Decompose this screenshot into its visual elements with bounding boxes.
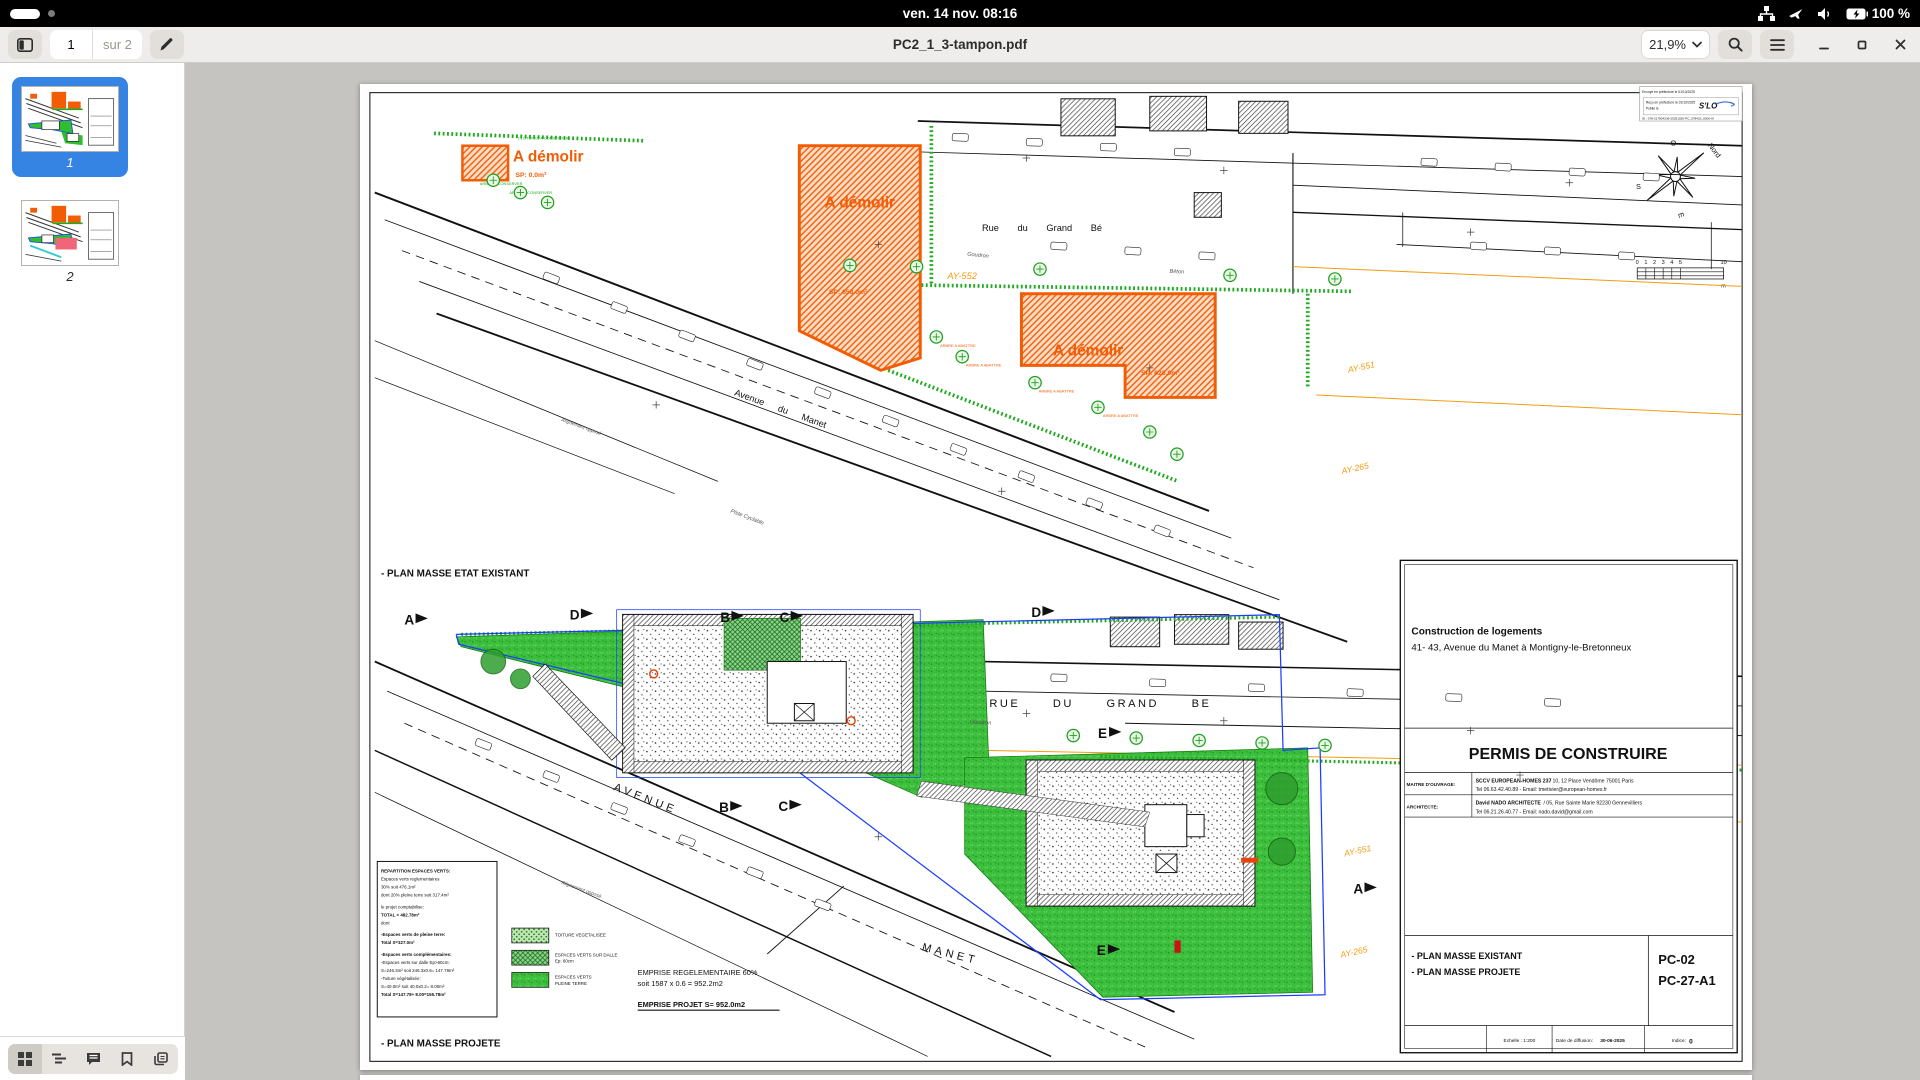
svg-text:D: D <box>1031 605 1041 620</box>
sheet-number-1: PC-02 <box>1658 952 1695 967</box>
svg-text:MAITRE D'OUVRAGE:: MAITRE D'OUVRAGE: <box>1406 782 1455 787</box>
maximize-button[interactable] <box>1850 33 1874 57</box>
svg-text:S: S <box>1636 182 1641 191</box>
svg-text:Date de diffusion:: Date de diffusion: <box>1556 1038 1593 1044</box>
dimension-label <box>610 301 628 314</box>
svg-text:David NADO ARCHITECTE: David NADO ARCHITECTE <box>1476 801 1542 807</box>
svg-text:30% soit 476.1m²: 30% soit 476.1m² <box>381 885 416 890</box>
workspace-active-pill[interactable] <box>10 9 40 19</box>
sheet-number-2: PC-27-A1 <box>1658 973 1716 988</box>
dimension-label <box>1618 252 1634 260</box>
demolir-label-3: A démolir <box>1053 342 1123 359</box>
svg-text:Reçu en préfecture le 01/10/20: Reçu en préfecture le 01/10/2025 <box>1646 101 1696 105</box>
svg-text:TOITURE VEGETALISEE: TOITURE VEGETALISEE <box>555 933 606 938</box>
annotation-bubble-icon <box>86 1052 101 1066</box>
hamburger-menu-icon <box>1770 39 1785 51</box>
svg-text:-Espaces verts complémentaires: -Espaces verts complémentaires: <box>381 952 452 957</box>
street-manet: MANET <box>921 942 980 968</box>
title-block: Construction de logements 41- 43, Avenue… <box>1400 560 1737 1052</box>
parcel-ay-552: AY-552 <box>946 271 977 281</box>
pdf-page-1: Envoyé en préfecture le 01/10/2025 Reçu … <box>360 84 1752 1070</box>
svg-text:ARBRE A ABATTRE: ARBRE A ABATTRE <box>1039 389 1075 394</box>
svg-text:le projet comptabilise:: le projet comptabilise: <box>381 904 424 909</box>
sidebar-mode-thumbnails-button[interactable] <box>8 1044 42 1074</box>
svg-text:ARCHITECTE:: ARCHITECTE: <box>1406 804 1438 809</box>
zoom-level-value: 21,9% <box>1649 37 1686 52</box>
maximize-icon <box>1856 39 1868 51</box>
sidebar-mode-attachments-button[interactable] <box>144 1044 178 1074</box>
svg-text:Total S=147.78+ 8.00=155.78m²: Total S=147.78+ 8.00=155.78m² <box>381 992 446 997</box>
svg-text:C: C <box>778 799 788 814</box>
svg-text:Alignement opposé: Alignement opposé <box>560 417 603 437</box>
svg-text:S=246.3m² soit 246.3x0.6= 147.: S=246.3m² soit 246.3x0.6= 147.78m² <box>381 968 455 973</box>
page-navigation: sur 2 <box>50 30 142 59</box>
svg-text:1: 1 <box>1644 260 1647 266</box>
minimize-button[interactable] <box>1812 33 1836 57</box>
minimize-icon <box>1818 39 1830 51</box>
dimension-label <box>1470 242 1486 250</box>
airplane-mode-icon <box>1788 6 1804 21</box>
volume-icon <box>1817 7 1833 21</box>
svg-text:D: D <box>570 608 580 623</box>
svg-text:AY-551: AY-551 <box>1342 843 1372 859</box>
demolition-areas <box>462 146 1215 398</box>
survey-cross-icon <box>1467 228 1474 235</box>
svg-text:30-06-2025: 30-06-2025 <box>1600 1038 1625 1044</box>
sidebar-toggle-button[interactable] <box>8 30 42 59</box>
dimension-label <box>950 443 968 456</box>
close-button[interactable] <box>1888 33 1912 57</box>
survey-cross-icon <box>1220 167 1227 174</box>
project-title: Construction de logements <box>1411 626 1542 637</box>
svg-text:PLEINE TERRE: PLEINE TERRE <box>555 981 587 986</box>
street-rue-du-grand-be-2: RUE DU GRAND BE <box>989 698 1211 710</box>
svg-text:-Espaces verts de pleine terre: -Espaces verts de pleine terre: <box>381 932 446 937</box>
workspace-dot[interactable] <box>48 10 55 17</box>
thumbnail-label-1: 1 <box>21 152 119 174</box>
svg-text:CLOTURES A CONSERVER: CLOTURES A CONSERVER <box>518 136 569 141</box>
svg-text:ARBRE A ABATTRE: ARBRE A ABATTRE <box>966 363 1002 368</box>
svg-text:dont 20% pleine terre soit 317: dont 20% pleine terre soit 317.4m² <box>381 893 449 898</box>
parcel-ay-265: AY-265 <box>1340 460 1370 476</box>
svg-text:Tel 06.63.42.40.89 - Email: tm: Tel 06.63.42.40.89 - Email: tmetivier@eu… <box>1476 787 1608 793</box>
svg-text:5: 5 <box>1679 260 1682 266</box>
battery-icon <box>1846 8 1868 20</box>
chevron-down-icon <box>1692 41 1702 48</box>
svg-text:C: C <box>780 610 790 625</box>
dimension-label <box>542 770 560 783</box>
svg-text:/ 10, 12 Place Vendôme 75001 P: / 10, 12 Place Vendôme 75001 Paris <box>1550 778 1634 784</box>
permit-title: PERMIS DE CONSTRUIRE <box>1469 745 1668 763</box>
svg-text:Echelle : 1:200: Echelle : 1:200 <box>1504 1038 1536 1044</box>
close-icon <box>1894 38 1907 51</box>
thumbnail-image-1 <box>21 86 119 152</box>
dimension-label <box>1153 525 1171 538</box>
demolir-label-2: A démolir <box>825 194 895 211</box>
svg-text:Alignement opposé: Alignement opposé <box>560 880 603 900</box>
thumbnail-label-2: 2 <box>21 266 119 288</box>
survey-cross-icon <box>1023 710 1030 717</box>
svg-text:0: 0 <box>1636 260 1639 266</box>
thumbnails-grid-icon <box>18 1052 32 1066</box>
sidebar-icon <box>17 38 33 52</box>
survey-cross-icon <box>1566 179 1573 186</box>
system-tray[interactable]: 100 % <box>1610 6 1910 21</box>
svg-text:Publié le: Publié le <box>1646 106 1659 110</box>
page-total-label: sur 2 <box>92 30 142 59</box>
sidebar-footer <box>0 1036 185 1080</box>
svg-text:Envoyé en préfecture le 01/10/: Envoyé en préfecture le 01/10/2025 <box>1642 90 1695 94</box>
demolir-label-1: A démolir <box>513 149 583 166</box>
svg-text:SCCV EUROPEAN-HOMES 237: SCCV EUROPEAN-HOMES 237 <box>1476 778 1552 784</box>
dimension-label <box>882 415 900 428</box>
sidebar-mode-outline-button[interactable] <box>42 1044 76 1074</box>
svg-text:- PLAN MASSE PROJETE: - PLAN MASSE PROJETE <box>1411 967 1520 977</box>
dimension-label <box>1150 679 1166 687</box>
sidebar-mode-bookmarks-button[interactable] <box>110 1044 144 1074</box>
legend-swatches: TOITURE VEGETALISEE ESPACES VERTS SUR DA… <box>512 928 618 987</box>
search-button[interactable] <box>1718 30 1752 59</box>
document-view[interactable]: Envoyé en préfecture le 01/10/2025 Reçu … <box>186 63 1920 1080</box>
dimension-label <box>1026 138 1042 146</box>
parcel-ay-551: AY-551 <box>1346 359 1376 375</box>
svg-text:ARBRE A CONSERVER: ARBRE A CONSERVER <box>480 181 523 186</box>
dimension-label <box>1051 242 1067 250</box>
svg-text:Total S=327.0m²: Total S=327.0m² <box>381 940 415 945</box>
svg-text:A: A <box>1353 882 1363 897</box>
svg-text:TOTAL = 482.78m²: TOTAL = 482.78m² <box>381 912 420 917</box>
dimension-label <box>814 386 832 399</box>
dimension-label <box>1199 252 1215 260</box>
svg-text:B: B <box>719 800 729 815</box>
plan-projete-caption: - PLAN MASSE PROJETE <box>381 1039 501 1050</box>
battery-percentage: 100 % <box>1872 6 1910 21</box>
window-title: PC2_1_3-tampon.pdf <box>0 37 1920 52</box>
zoom-level-dropdown[interactable]: 21,9% <box>1641 30 1710 59</box>
svg-text:Ep: 60cm: Ep: 60cm <box>555 959 574 964</box>
svg-text:AY-265: AY-265 <box>1338 944 1368 960</box>
svg-text:ESPACES VERTS: ESPACES VERTS <box>555 975 592 980</box>
thumbnails-sidebar: 1 2 <box>0 63 185 1080</box>
street-avenue-du-manet: Avenue du Manet <box>733 387 828 430</box>
pages-copy-icon <box>154 1052 168 1066</box>
dimension-label <box>746 866 764 879</box>
svg-text:dont: dont <box>381 920 390 925</box>
bookmark-icon <box>121 1052 133 1066</box>
dimension-label <box>610 802 628 815</box>
dimension-label <box>1347 689 1363 697</box>
svg-text:REPARTITION ESPACES VERTS:: REPARTITION ESPACES VERTS: <box>381 869 451 874</box>
dimension-label <box>678 834 696 847</box>
svg-text:4: 4 <box>1670 260 1673 266</box>
dimension-label <box>1085 497 1103 510</box>
thumbnail-image-2 <box>21 200 119 266</box>
svg-text:-Espaces verts sur dalle Ep>60: -Espaces verts sur dalle Ep>60cm: <box>381 960 450 965</box>
svg-text:ARBRE A ABATTRE: ARBRE A ABATTRE <box>940 343 976 348</box>
svg-text:SP: 0.0m²: SP: 0.0m² <box>515 172 547 179</box>
svg-text:/ 05, Rue Sainte Marie 92230 G: / 05, Rue Sainte Marie 92230 Gennevillie… <box>1543 801 1642 807</box>
svg-text:3: 3 <box>1662 260 1665 266</box>
pencil-icon <box>159 37 174 52</box>
svg-text:SP: 625.0m²: SP: 625.0m² <box>1141 370 1180 377</box>
dimension-label <box>814 898 832 911</box>
survey-cross-icon <box>1220 717 1227 724</box>
svg-text:Indice:: Indice: <box>1672 1038 1686 1044</box>
thumbnail-page-2[interactable]: 2 <box>12 191 128 291</box>
svg-text:0: 0 <box>1689 1038 1693 1045</box>
emprise-projet: EMPRISE PROJET S= 952.0m2 <box>638 1000 745 1009</box>
main-menu-button[interactable] <box>1760 30 1794 59</box>
svg-text:E: E <box>1097 943 1106 958</box>
svg-text:SP: 658.0m²: SP: 658.0m² <box>829 289 868 296</box>
svg-text:Béton: Béton <box>1169 269 1184 276</box>
svg-text:Piste Cyclable: Piste Cyclable <box>729 508 764 526</box>
network-wired-icon <box>1758 6 1775 21</box>
pdf-page-2-edge[interactable] <box>360 1075 1752 1080</box>
projected-building-west <box>623 615 913 773</box>
svg-text:E: E <box>1098 726 1107 741</box>
dimension-label <box>1248 684 1264 692</box>
site-plan-drawing: Envoyé en préfecture le 01/10/2025 Reçu … <box>360 84 1752 1070</box>
dimension-label <box>1174 148 1190 156</box>
sidebar-mode-annotations-button[interactable] <box>76 1044 110 1074</box>
dimension-label <box>475 738 493 751</box>
workspace-indicator[interactable] <box>10 9 310 19</box>
dimension-label <box>1100 143 1116 151</box>
svg-text:Tel 06.21.26.40.77 - Email: na: Tel 06.21.26.40.77 - Email: nado.david@g… <box>1476 809 1593 815</box>
svg-text:ID : 078-217804236-20251020-PC: ID : 078-217804236-20251020-PC_078423_00… <box>1642 116 1714 120</box>
survey-cross-icon <box>652 401 659 408</box>
dimension-label <box>1421 158 1437 166</box>
dimension-label <box>1544 247 1560 255</box>
dimension-label <box>1495 163 1511 171</box>
dimension-label <box>746 358 764 371</box>
app-headerbar: PC2_1_3-tampon.pdf sur 2 21,9% <box>0 27 1920 63</box>
svg-text:Goudron: Goudron <box>967 252 989 260</box>
search-icon <box>1728 37 1743 52</box>
dimension-label <box>1125 247 1141 255</box>
svg-text:ARBRE A ABATTRE: ARBRE A ABATTRE <box>1103 413 1139 418</box>
dimension-label <box>1446 694 1462 702</box>
svg-text:E: E <box>1676 211 1686 219</box>
slo-logo: S'LO <box>1699 102 1718 111</box>
outline-list-icon <box>52 1053 66 1065</box>
svg-text:m: m <box>1721 284 1726 290</box>
svg-text:-Toiture végétalisée:: -Toiture végétalisée: <box>381 976 421 981</box>
plan-existant-caption: - PLAN MASSE ETAT EXISTANT <box>381 568 529 579</box>
dimension-label <box>678 330 696 343</box>
annotate-button[interactable] <box>150 30 184 59</box>
dimension-label <box>1569 168 1585 176</box>
svg-text:soit 1587 x 0.6 = 952.2m2: soit 1587 x 0.6 = 952.2m2 <box>638 979 723 988</box>
dimension-label <box>1051 674 1067 682</box>
svg-text:2: 2 <box>1653 260 1656 266</box>
dimension-label <box>1643 173 1659 181</box>
green-space-legend: REPARTITION ESPACES VERTS: Espaces verts… <box>377 861 497 1016</box>
system-top-bar: ven. 14 nov. 08:16 100 % <box>0 0 1920 27</box>
dimension-label <box>952 133 968 141</box>
emprise-reglementaire: EMPRISE REGELEMENTAIRE 60% <box>638 968 758 977</box>
svg-text:B: B <box>720 610 730 625</box>
project-address: 41- 43, Avenue du Manet à Montigny-le-Br… <box>1411 642 1631 653</box>
thumbnail-page-1[interactable]: 1 <box>12 77 128 177</box>
dimension-label <box>1544 699 1560 707</box>
survey-cross-icon <box>998 488 1005 495</box>
street-rue-du-grand-be: Rue du Grand Bé <box>982 223 1102 233</box>
prefecture-stamp: Envoyé en préfecture le 01/10/2025 Reçu … <box>1640 86 1742 121</box>
svg-text:S=40.0m² soit 40.0x0.2= 8.00m²: S=40.0m² soit 40.0x0.2= 8.00m² <box>381 984 445 989</box>
svg-text:ESPACES VERTS SUR DALLE: ESPACES VERTS SUR DALLE <box>555 952 618 957</box>
svg-text:A: A <box>404 613 414 628</box>
svg-text:Espaces verts reglementaires: Espaces verts reglementaires <box>381 877 440 882</box>
page-number-input[interactable] <box>50 30 92 59</box>
svg-text:- PLAN MASSE EXISTANT: - PLAN MASSE EXISTANT <box>1411 951 1522 961</box>
